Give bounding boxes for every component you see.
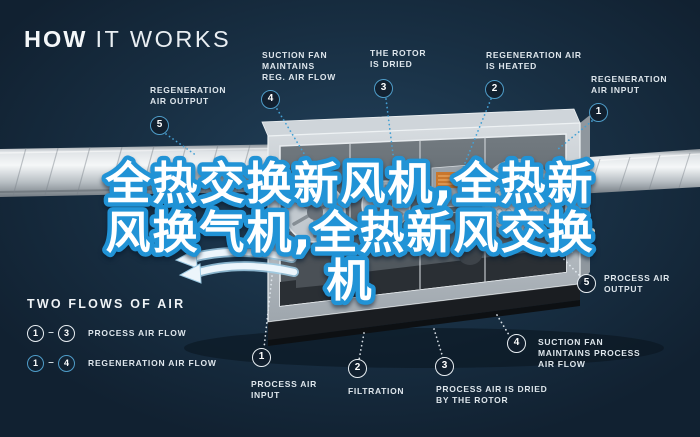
label-line: AIR INPUT xyxy=(591,85,667,96)
callout-label-suction-proc: SUCTION FAN MAINTAINS PROCESS AIR FLOW xyxy=(538,337,640,370)
callout-label-reg-input: REGENERATION AIR INPUT xyxy=(591,74,667,96)
legend-circle-from: 1 xyxy=(27,325,44,342)
callout-number-proc-dried: 3 xyxy=(435,357,454,376)
label-line: THE ROTOR xyxy=(370,48,426,59)
fan-icon xyxy=(362,181,410,229)
label-line: IS HEATED xyxy=(486,61,582,72)
legend-range-dash: – xyxy=(44,327,58,338)
callout-number-proc-output: 5 xyxy=(577,274,596,293)
callout-number-rotor-dried: 3 xyxy=(374,79,393,98)
label-line: IS DRIED xyxy=(370,59,426,70)
legend-circle-to: 3 xyxy=(58,325,75,342)
callout-label-reg-output: REGENERATION AIR OUTPUT xyxy=(150,85,226,107)
legend-label-process: PROCESS AIR FLOW xyxy=(88,328,186,338)
label-line: AIR FLOW xyxy=(538,359,640,370)
infographic-how-it-works: HOWIT WORKS 5 4 3 2 1 REGENERATION AIR O… xyxy=(0,0,700,437)
callout-number-proc-input: 1 xyxy=(252,348,271,367)
callout-label-proc-output: PROCESS AIR OUTPUT xyxy=(604,273,670,295)
callout-number-reg-heated: 2 xyxy=(485,80,504,99)
page-title: HOWIT WORKS xyxy=(24,26,231,53)
callout-label-rotor-dried: THE ROTOR IS DRIED xyxy=(370,48,426,70)
fan-icon xyxy=(285,182,345,242)
legend-circle-to: 4 xyxy=(58,355,75,372)
label-line: SUCTION FAN xyxy=(262,50,336,61)
legend-label-regeneration: REGENERATION AIR FLOW xyxy=(88,358,217,368)
page-title-bold: HOW xyxy=(24,26,87,52)
callout-number-reg-input: 1 xyxy=(589,103,608,122)
label-line: MAINTAINS PROCESS xyxy=(538,348,640,359)
callout-number-suction-proc: 4 xyxy=(507,334,526,353)
label-line: PROCESS AIR xyxy=(604,273,670,284)
label-line: MAINTAINS xyxy=(262,61,336,72)
callout-number-reg-output: 5 xyxy=(150,116,169,135)
rotor-icon xyxy=(482,160,554,232)
callout-number-suction-reg: 4 xyxy=(261,90,280,109)
label-line: OUTPUT xyxy=(604,284,670,295)
label-line: REGENERATION xyxy=(591,74,667,85)
legend-circle-from: 1 xyxy=(27,355,44,372)
legend-range-dash: – xyxy=(44,357,58,368)
motor-icon xyxy=(457,239,483,265)
label-line: BY THE ROTOR xyxy=(436,395,547,406)
page-title-light: IT WORKS xyxy=(95,26,231,52)
label-line: AIR OUTPUT xyxy=(150,96,226,107)
callout-label-suction-reg: SUCTION FAN MAINTAINS REG. AIR FLOW xyxy=(262,50,336,83)
callout-label-reg-heated: REGENERATION AIR IS HEATED xyxy=(486,50,582,72)
label-line: INPUT xyxy=(251,390,317,401)
label-line: FILTRATION xyxy=(348,386,404,397)
machine-right-face xyxy=(580,115,590,284)
callout-label-proc-dried: PROCESS AIR IS DRIED BY THE ROTOR xyxy=(436,384,547,406)
callout-label-filtration: FILTRATION xyxy=(348,386,404,397)
label-line: PROCESS AIR IS DRIED xyxy=(436,384,547,395)
callout-number-filtration: 2 xyxy=(348,359,367,378)
label-line: PROCESS AIR xyxy=(251,379,317,390)
left-spiral-duct xyxy=(0,144,298,197)
label-line: REG. AIR FLOW xyxy=(262,72,336,83)
legend-title: TWO FLOWS OF AIR xyxy=(27,297,185,311)
heater-icon xyxy=(432,165,470,208)
label-line: REGENERATION xyxy=(150,85,226,96)
label-line: SUCTION FAN xyxy=(538,337,640,348)
callout-label-proc-input: PROCESS AIR INPUT xyxy=(251,379,317,401)
air-handling-unit-cutaway xyxy=(262,109,590,346)
label-line: REGENERATION AIR xyxy=(486,50,582,61)
